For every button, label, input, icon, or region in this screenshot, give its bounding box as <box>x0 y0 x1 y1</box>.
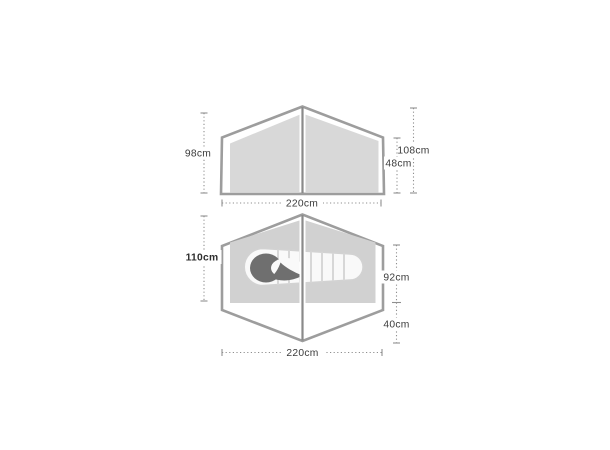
dimension-side-height-left: 98cm <box>181 113 215 193</box>
side-elevation-view: 98cm 108cm 48cm 220cm <box>181 107 432 210</box>
dimension-floor-inner-width: 110cm <box>184 216 222 301</box>
floor-length-label: 220cm <box>286 348 318 359</box>
floor-inner-width-label: 110cm <box>186 253 219 264</box>
dimension-side-height-peak: 108cm <box>396 108 432 193</box>
tent-dimension-diagram: 98cm 108cm 48cm 220cm <box>0 0 610 450</box>
diagram-canvas: 98cm 108cm 48cm 220cm <box>0 0 610 450</box>
floor-plan-view: 110cm 92cm 40cm 220cm <box>184 215 413 360</box>
dimension-floor-length: 220cm <box>222 346 382 359</box>
side-width-label: 220cm <box>286 199 318 210</box>
floor-inner-depth-label: 92cm <box>383 273 409 284</box>
dimension-side-width: 220cm <box>222 197 381 210</box>
floor-porch-depth-label: 40cm <box>383 320 409 331</box>
side-height-wall-label: 48cm <box>385 159 411 170</box>
dimension-floor-depths: 92cm 40cm <box>381 245 413 343</box>
side-height-peak-label: 108cm <box>397 146 429 157</box>
side-height-left-label: 98cm <box>185 149 211 160</box>
